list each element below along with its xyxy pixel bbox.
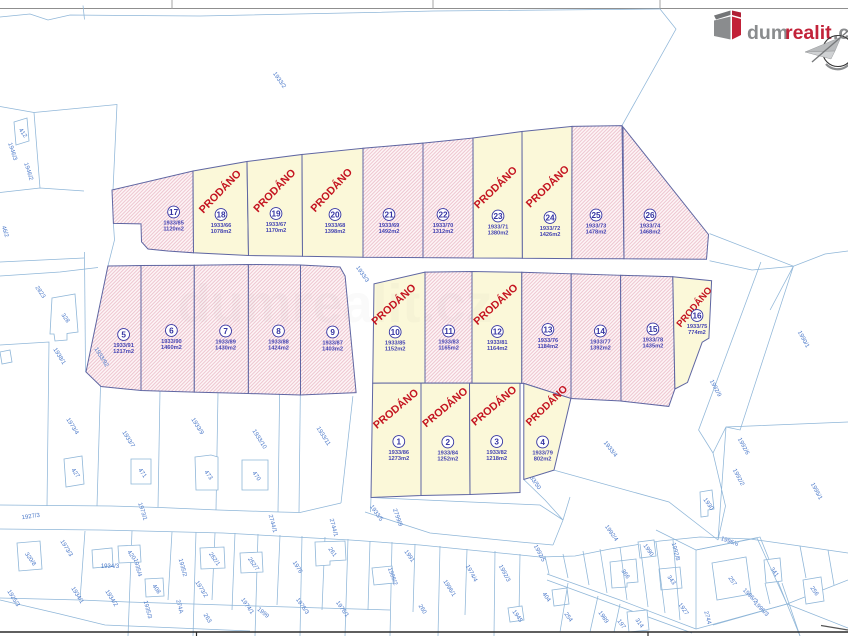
svg-text:1252m2: 1252m2 (437, 457, 458, 463)
svg-text:16: 16 (692, 312, 702, 321)
svg-text:1933/72: 1933/72 (540, 226, 561, 232)
svg-text:1492m2: 1492m2 (379, 229, 400, 235)
svg-text:1430m2: 1430m2 (215, 346, 236, 352)
svg-text:dum: dum (747, 22, 788, 44)
svg-text:1120m2: 1120m2 (163, 227, 184, 233)
svg-text:1934/3: 1934/3 (101, 564, 120, 570)
svg-text:10: 10 (391, 328, 401, 337)
svg-text:9: 9 (330, 328, 335, 337)
svg-text:1380m2: 1380m2 (488, 231, 509, 237)
svg-text:1468m2: 1468m2 (640, 230, 661, 236)
svg-text:1933/84: 1933/84 (438, 450, 459, 456)
svg-text:1933/85: 1933/85 (163, 220, 184, 226)
svg-text:24: 24 (545, 214, 555, 223)
svg-text:1933/75: 1933/75 (687, 324, 708, 330)
svg-text:23: 23 (493, 212, 503, 221)
svg-text:1478m2: 1478m2 (586, 230, 607, 236)
svg-text:realit: realit (785, 22, 832, 44)
svg-text:2: 2 (446, 438, 451, 447)
svg-text:5: 5 (121, 331, 126, 340)
svg-text:1460m2: 1460m2 (161, 345, 182, 351)
svg-text:1426m2: 1426m2 (540, 232, 561, 238)
svg-text:1273m2: 1273m2 (388, 456, 409, 462)
svg-text:1933/74: 1933/74 (640, 223, 661, 229)
svg-text:1933/79: 1933/79 (532, 450, 553, 456)
svg-text:21: 21 (384, 211, 394, 220)
svg-text:1933/73: 1933/73 (586, 223, 607, 229)
svg-text:1933/69: 1933/69 (379, 223, 400, 229)
svg-text:6: 6 (169, 327, 174, 336)
svg-text:25: 25 (591, 211, 601, 220)
svg-text:1933/82: 1933/82 (486, 450, 507, 456)
svg-text:12: 12 (493, 328, 503, 337)
svg-text:1933/85: 1933/85 (385, 340, 406, 346)
svg-text:1435m2: 1435m2 (642, 344, 663, 350)
svg-text:17: 17 (169, 208, 179, 217)
svg-text:1078m2: 1078m2 (211, 229, 232, 235)
svg-text:1164m2: 1164m2 (487, 346, 508, 352)
svg-text:8: 8 (276, 327, 281, 336)
svg-text:3: 3 (494, 438, 499, 447)
svg-text:1184m2: 1184m2 (538, 344, 559, 350)
svg-text:20: 20 (330, 211, 340, 220)
svg-text:1933/77: 1933/77 (590, 339, 611, 345)
svg-text:1933/89: 1933/89 (215, 339, 236, 345)
svg-text:1933/91: 1933/91 (113, 343, 134, 349)
svg-text:1933/70: 1933/70 (433, 223, 454, 229)
svg-text:1392m2: 1392m2 (590, 346, 611, 352)
svg-text:1312m2: 1312m2 (433, 229, 454, 235)
svg-text:26: 26 (645, 211, 655, 220)
svg-text:1398m2: 1398m2 (325, 229, 346, 235)
svg-text:1170m2: 1170m2 (266, 228, 287, 234)
svg-text:14: 14 (596, 327, 606, 336)
svg-text:1933/76: 1933/76 (538, 338, 559, 344)
svg-text:1152m2: 1152m2 (385, 347, 406, 353)
svg-text:11: 11 (444, 327, 453, 336)
svg-text:1403m2: 1403m2 (322, 347, 343, 353)
svg-text:1933/88: 1933/88 (268, 339, 289, 345)
svg-text:7: 7 (223, 327, 228, 336)
svg-text:1933/78: 1933/78 (643, 337, 664, 343)
svg-text:22: 22 (438, 211, 448, 220)
svg-text:1217m2: 1217m2 (113, 349, 134, 355)
svg-text:19: 19 (271, 210, 281, 219)
svg-text:1933/81: 1933/81 (487, 340, 508, 346)
svg-text:1424m2: 1424m2 (268, 346, 289, 352)
svg-text:15: 15 (648, 325, 658, 334)
svg-text:1165m2: 1165m2 (438, 346, 459, 352)
svg-text:1933/66: 1933/66 (211, 223, 232, 229)
svg-text:774m2: 774m2 (688, 330, 706, 336)
svg-text:1218m2: 1218m2 (486, 456, 507, 462)
svg-text:1933/83: 1933/83 (438, 339, 459, 345)
svg-text:802m2: 802m2 (534, 457, 552, 463)
svg-text:1933/71: 1933/71 (488, 224, 509, 230)
svg-text:13: 13 (543, 326, 553, 335)
svg-text:1933/87: 1933/87 (322, 340, 343, 346)
svg-text:1933/90: 1933/90 (161, 339, 182, 345)
svg-text:1933/68: 1933/68 (325, 223, 346, 229)
svg-text:1933/67: 1933/67 (266, 222, 287, 228)
svg-text:4: 4 (540, 438, 545, 447)
svg-text:1: 1 (397, 438, 402, 447)
svg-text:18: 18 (216, 211, 226, 220)
svg-text:1933/86: 1933/86 (389, 450, 410, 456)
